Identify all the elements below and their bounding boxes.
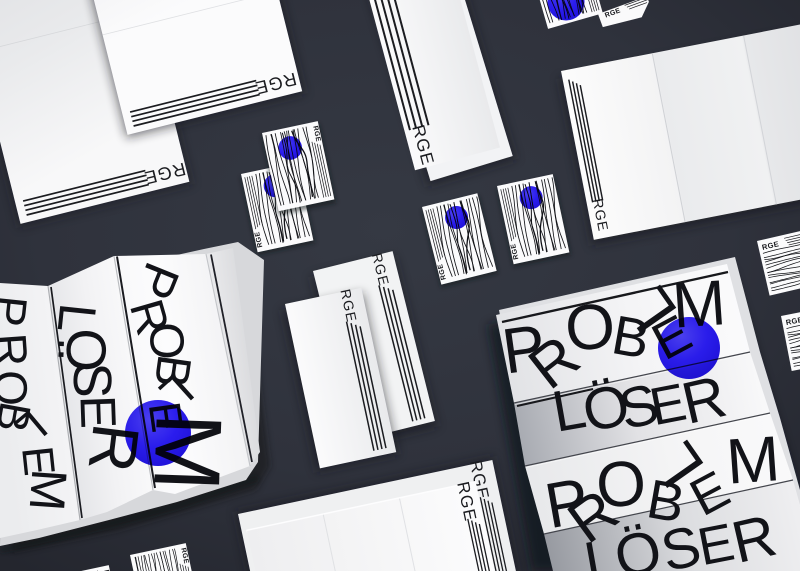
svg-text:M: M: [19, 467, 78, 512]
svg-text:S: S: [61, 361, 122, 399]
svg-text:O: O: [594, 446, 649, 521]
svg-text:M: M: [724, 422, 782, 498]
svg-text:P: P: [0, 293, 37, 329]
svg-text:R: R: [0, 332, 38, 369]
